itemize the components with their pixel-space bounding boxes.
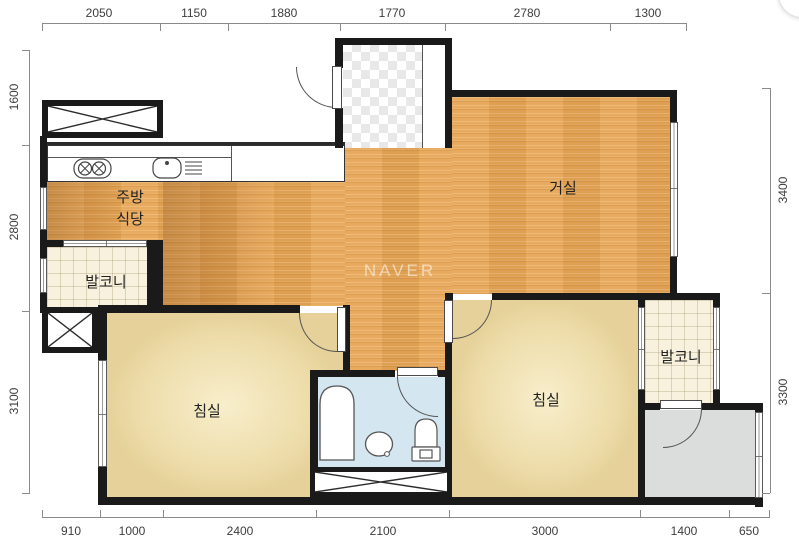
x-mark-icon bbox=[48, 313, 92, 347]
x-mark-icon bbox=[48, 106, 157, 132]
dimension-line bbox=[29, 50, 30, 493]
room-label-balcony-right: 발코니 bbox=[636, 347, 726, 369]
wall bbox=[335, 38, 452, 45]
dim-label: 3300 bbox=[776, 362, 790, 422]
wall bbox=[445, 90, 677, 97]
kitchen-counter bbox=[47, 145, 345, 182]
bedroom-right-door bbox=[444, 300, 453, 343]
window bbox=[755, 412, 763, 498]
room-label-balcony-left: 발코니 bbox=[61, 272, 151, 294]
dim-label: 650 bbox=[719, 524, 779, 538]
sink-basin-icon bbox=[366, 432, 393, 456]
dim-label: 2800 bbox=[7, 197, 21, 257]
wall bbox=[638, 293, 645, 307]
wall bbox=[40, 136, 47, 187]
floor-plan: 주방 식당 거실 발코니 발코니 침실 침실 NAVER 2050 1150 1… bbox=[0, 0, 799, 553]
entrance-floor bbox=[343, 43, 422, 148]
room-label-kitchen: 주방 식당 bbox=[85, 187, 175, 231]
wall bbox=[335, 38, 343, 68]
dim-label: 2400 bbox=[210, 524, 270, 538]
wall bbox=[670, 90, 677, 122]
bathtub-icon bbox=[320, 386, 354, 460]
dim-label: 1300 bbox=[618, 6, 678, 20]
naver-watermark: NAVER bbox=[350, 261, 450, 281]
dim-label: 3100 bbox=[7, 371, 21, 431]
toilet-icon bbox=[412, 419, 440, 461]
wall bbox=[98, 305, 300, 313]
wall bbox=[638, 293, 720, 300]
window bbox=[40, 187, 47, 230]
wall bbox=[713, 390, 720, 403]
room-label-bedroom-left: 침실 bbox=[162, 401, 252, 423]
dim-label: 1400 bbox=[654, 524, 714, 538]
bathroom-fixtures bbox=[310, 370, 452, 497]
dim-label: 3000 bbox=[515, 524, 575, 538]
dim-label: 1000 bbox=[102, 524, 162, 538]
hallway-floor bbox=[345, 146, 452, 371]
floating-button[interactable] bbox=[778, 0, 799, 18]
shoe-closet bbox=[422, 43, 446, 148]
wall bbox=[755, 403, 763, 412]
wall bbox=[40, 247, 47, 258]
wall bbox=[98, 313, 107, 360]
wall bbox=[98, 467, 107, 498]
dimension-line bbox=[770, 88, 771, 493]
dining-floor bbox=[163, 182, 345, 306]
wall bbox=[492, 293, 640, 300]
dim-label: 1150 bbox=[164, 6, 224, 20]
dim-label: 1880 bbox=[254, 6, 314, 20]
room-label-living: 거실 bbox=[518, 178, 608, 200]
wall bbox=[98, 497, 763, 505]
window bbox=[40, 258, 47, 293]
window bbox=[63, 240, 147, 247]
sink-icon bbox=[153, 158, 181, 178]
window bbox=[98, 360, 107, 467]
wall bbox=[638, 403, 660, 410]
duct-box bbox=[42, 307, 98, 353]
stove-icon bbox=[74, 159, 111, 178]
wall bbox=[40, 240, 63, 247]
wall bbox=[702, 403, 763, 410]
dim-label: 3400 bbox=[776, 160, 790, 220]
wall bbox=[713, 293, 720, 307]
dim-label: 2100 bbox=[353, 524, 413, 538]
door-swing-arc bbox=[296, 67, 337, 108]
dim-label: 2050 bbox=[69, 6, 129, 20]
utility-room-door bbox=[660, 400, 702, 409]
dim-label: 1600 bbox=[7, 67, 21, 127]
room-label-bedroom-right: 침실 bbox=[501, 390, 591, 412]
dimension-line bbox=[42, 23, 687, 24]
entrance-door bbox=[332, 66, 342, 109]
closet-box bbox=[42, 100, 163, 138]
wall bbox=[335, 108, 343, 148]
kitchen-appliances bbox=[48, 146, 343, 180]
utility-room-floor bbox=[645, 410, 755, 498]
dim-label: 910 bbox=[41, 524, 101, 538]
dim-label: 1770 bbox=[362, 6, 422, 20]
dim-label: 2780 bbox=[497, 6, 557, 20]
dish-rack-icon bbox=[185, 162, 202, 174]
dimension-line bbox=[42, 517, 770, 518]
bedroom-left-door bbox=[337, 307, 346, 352]
wall bbox=[445, 293, 453, 300]
window bbox=[670, 122, 678, 257]
